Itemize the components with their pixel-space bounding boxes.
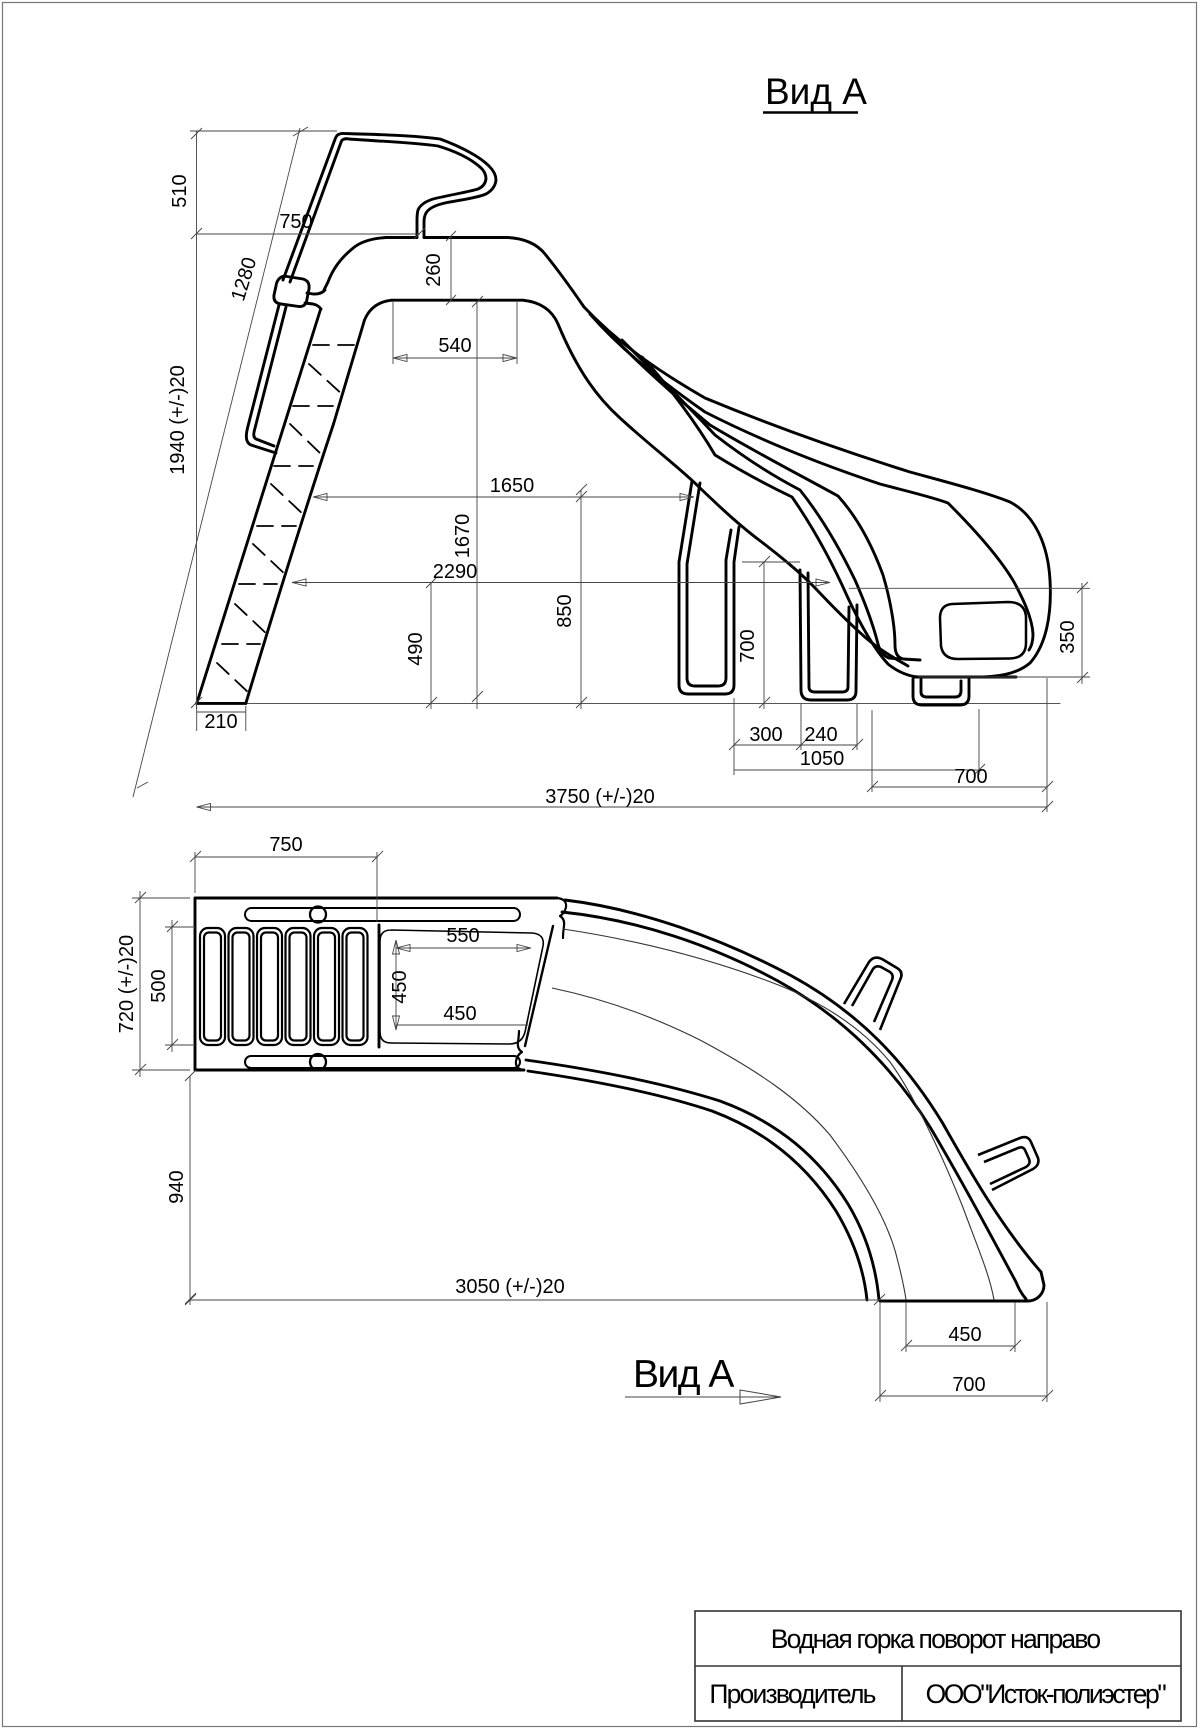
svg-text:1940 (+/-)20: 1940 (+/-)20 [167, 365, 189, 475]
svg-text:700: 700 [952, 1374, 985, 1396]
svg-text:850: 850 [554, 594, 576, 627]
svg-text:210: 210 [204, 711, 237, 733]
svg-text:Производитель: Производитель [709, 1679, 875, 1709]
svg-text:750: 750 [269, 834, 302, 856]
svg-text:Вид А: Вид А [633, 1353, 734, 1396]
svg-text:350: 350 [1057, 620, 1079, 653]
svg-text:500: 500 [148, 969, 170, 1002]
svg-text:Вид А: Вид А [765, 71, 867, 112]
svg-text:3050 (+/-)20: 3050 (+/-)20 [455, 1276, 565, 1298]
svg-text:700: 700 [737, 629, 759, 662]
svg-text:1050: 1050 [800, 748, 845, 770]
svg-text:450: 450 [389, 970, 411, 1003]
svg-text:Водная горка поворот направо: Водная горка поворот направо [771, 1624, 1101, 1654]
svg-text:510: 510 [169, 174, 191, 207]
svg-text:490: 490 [405, 632, 427, 665]
svg-text:1280: 1280 [227, 255, 261, 304]
svg-text:940: 940 [166, 1170, 188, 1203]
svg-text:260: 260 [423, 253, 445, 286]
svg-text:700: 700 [954, 766, 987, 788]
svg-text:450: 450 [443, 1003, 476, 1025]
svg-text:1670: 1670 [452, 514, 474, 559]
svg-text:3750 (+/-)20: 3750 (+/-)20 [545, 786, 655, 808]
svg-text:750: 750 [279, 211, 312, 233]
svg-text:720 (+/-)20: 720 (+/-)20 [116, 935, 138, 1033]
svg-text:1650: 1650 [490, 475, 535, 497]
svg-text:2290: 2290 [433, 561, 478, 583]
svg-text:550: 550 [446, 925, 479, 947]
svg-text:540: 540 [438, 335, 471, 357]
svg-text:300: 300 [749, 724, 782, 746]
svg-text:240: 240 [804, 724, 837, 746]
svg-text:ООО"Исток-полиэстер": ООО"Исток-полиэстер" [926, 1679, 1167, 1709]
svg-text:450: 450 [948, 1324, 981, 1346]
